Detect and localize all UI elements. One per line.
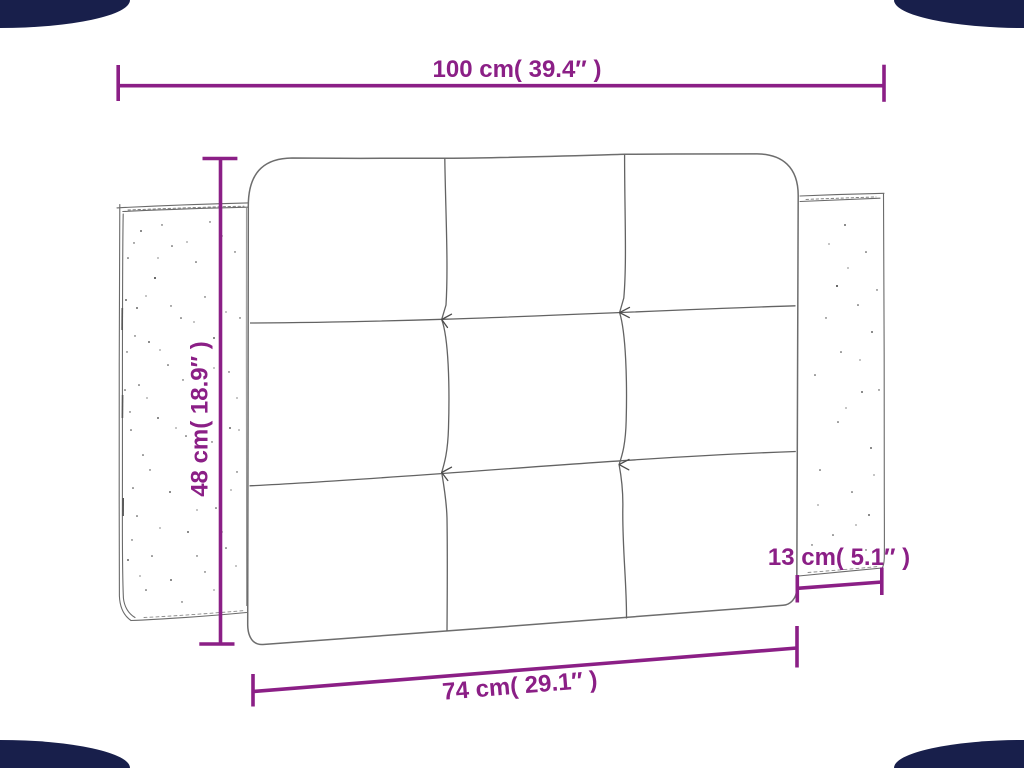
svg-text:100 cm( 39.4″ ): 100 cm( 39.4″ ) <box>433 56 602 83</box>
svg-text:13 cm( 5.1″ ): 13 cm( 5.1″ ) <box>768 544 910 571</box>
svg-text:48 cm( 18.9″ ): 48 cm( 18.9″ ) <box>187 341 214 497</box>
